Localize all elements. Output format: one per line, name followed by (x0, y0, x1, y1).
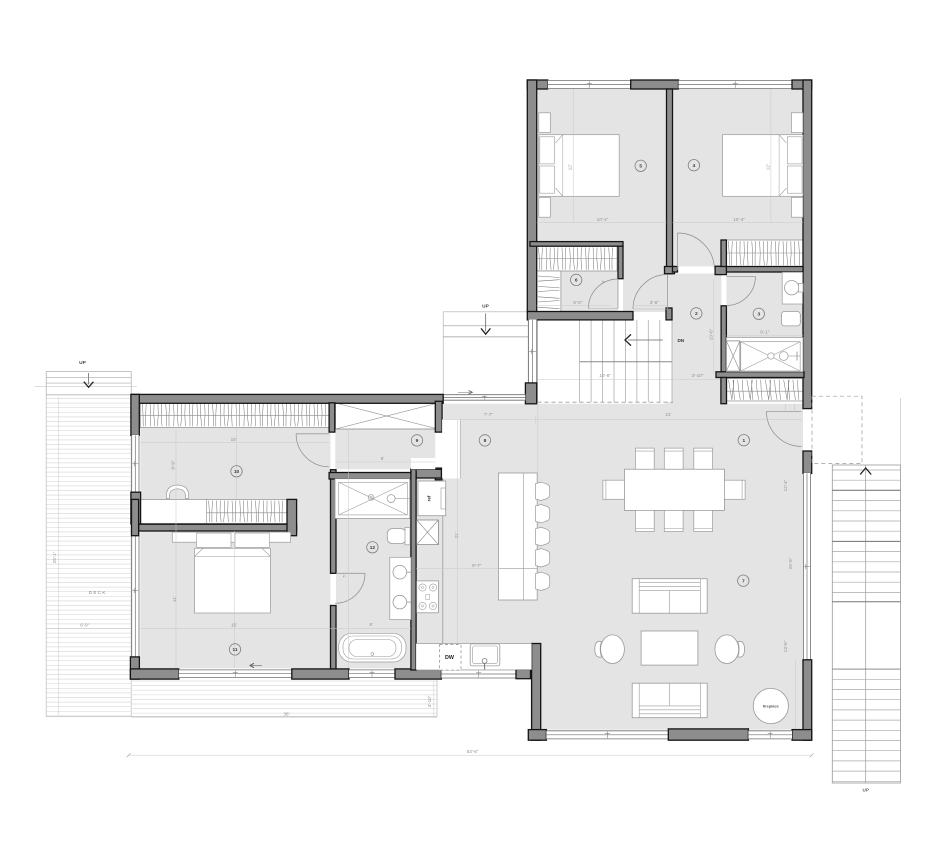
svg-text:UP: UP (863, 788, 869, 793)
svg-text:7: 7 (742, 578, 745, 584)
svg-text:UP: UP (482, 304, 489, 310)
svg-text:fireplace: fireplace (763, 704, 780, 709)
svg-text:3'-6": 3'-6" (650, 300, 660, 305)
svg-text:2: 2 (695, 311, 698, 317)
svg-text:9'-9": 9'-9" (171, 460, 176, 470)
svg-text:12': 12' (765, 164, 770, 170)
svg-text:8': 8' (381, 456, 385, 461)
svg-text:9: 9 (416, 438, 419, 444)
svg-text:12'-4": 12'-4" (783, 479, 788, 491)
svg-text:4: 4 (693, 163, 696, 169)
svg-text:25'-8": 25'-8" (788, 557, 793, 569)
svg-text:1: 1 (742, 438, 745, 444)
svg-text:38': 38' (284, 711, 290, 716)
svg-text:8: 8 (484, 438, 487, 444)
svg-text:10'-6": 10'-6" (709, 328, 714, 340)
svg-text:10: 10 (234, 469, 240, 475)
svg-text:3'-10": 3'-10" (692, 373, 704, 378)
svg-text:10'-4": 10'-4" (597, 217, 609, 222)
svg-text:12: 12 (370, 545, 376, 551)
svg-text:UP: UP (79, 360, 86, 366)
svg-text:53'-6": 53'-6" (467, 749, 479, 754)
svg-text:13'-6": 13'-6" (783, 640, 788, 652)
svg-text:3'-10": 3'-10" (427, 695, 432, 707)
svg-text:12': 12' (568, 164, 573, 170)
svg-text:21': 21' (665, 412, 671, 417)
svg-text:5': 5' (342, 574, 347, 577)
svg-text:4': 4' (600, 280, 605, 283)
svg-text:10'-8": 10'-8" (599, 373, 611, 378)
svg-text:9'-7": 9'-7" (472, 563, 482, 568)
svg-text:DECK: DECK (89, 590, 107, 595)
svg-text:6'-1": 6'-1" (760, 329, 770, 334)
svg-text:6'-5": 6'-5" (573, 300, 583, 305)
svg-text:DN: DN (677, 338, 684, 343)
svg-text:6'-9": 6'-9" (80, 622, 90, 627)
svg-text:10'-4": 10'-4" (733, 217, 745, 222)
svg-text:6: 6 (575, 278, 578, 284)
svg-text:ref: ref (426, 495, 431, 501)
svg-text:26'-1": 26'-1" (52, 551, 57, 563)
svg-text:21': 21' (454, 532, 459, 538)
svg-text:15': 15' (231, 437, 237, 442)
svg-text:3: 3 (757, 312, 760, 318)
svg-text:DW: DW (445, 655, 455, 661)
svg-text:7'-7": 7'-7" (484, 412, 494, 417)
svg-text:15': 15' (231, 623, 237, 628)
svg-text:11: 11 (232, 647, 237, 653)
svg-text:5: 5 (639, 164, 642, 170)
svg-text:11': 11' (172, 596, 177, 602)
svg-text:8': 8' (369, 622, 373, 627)
